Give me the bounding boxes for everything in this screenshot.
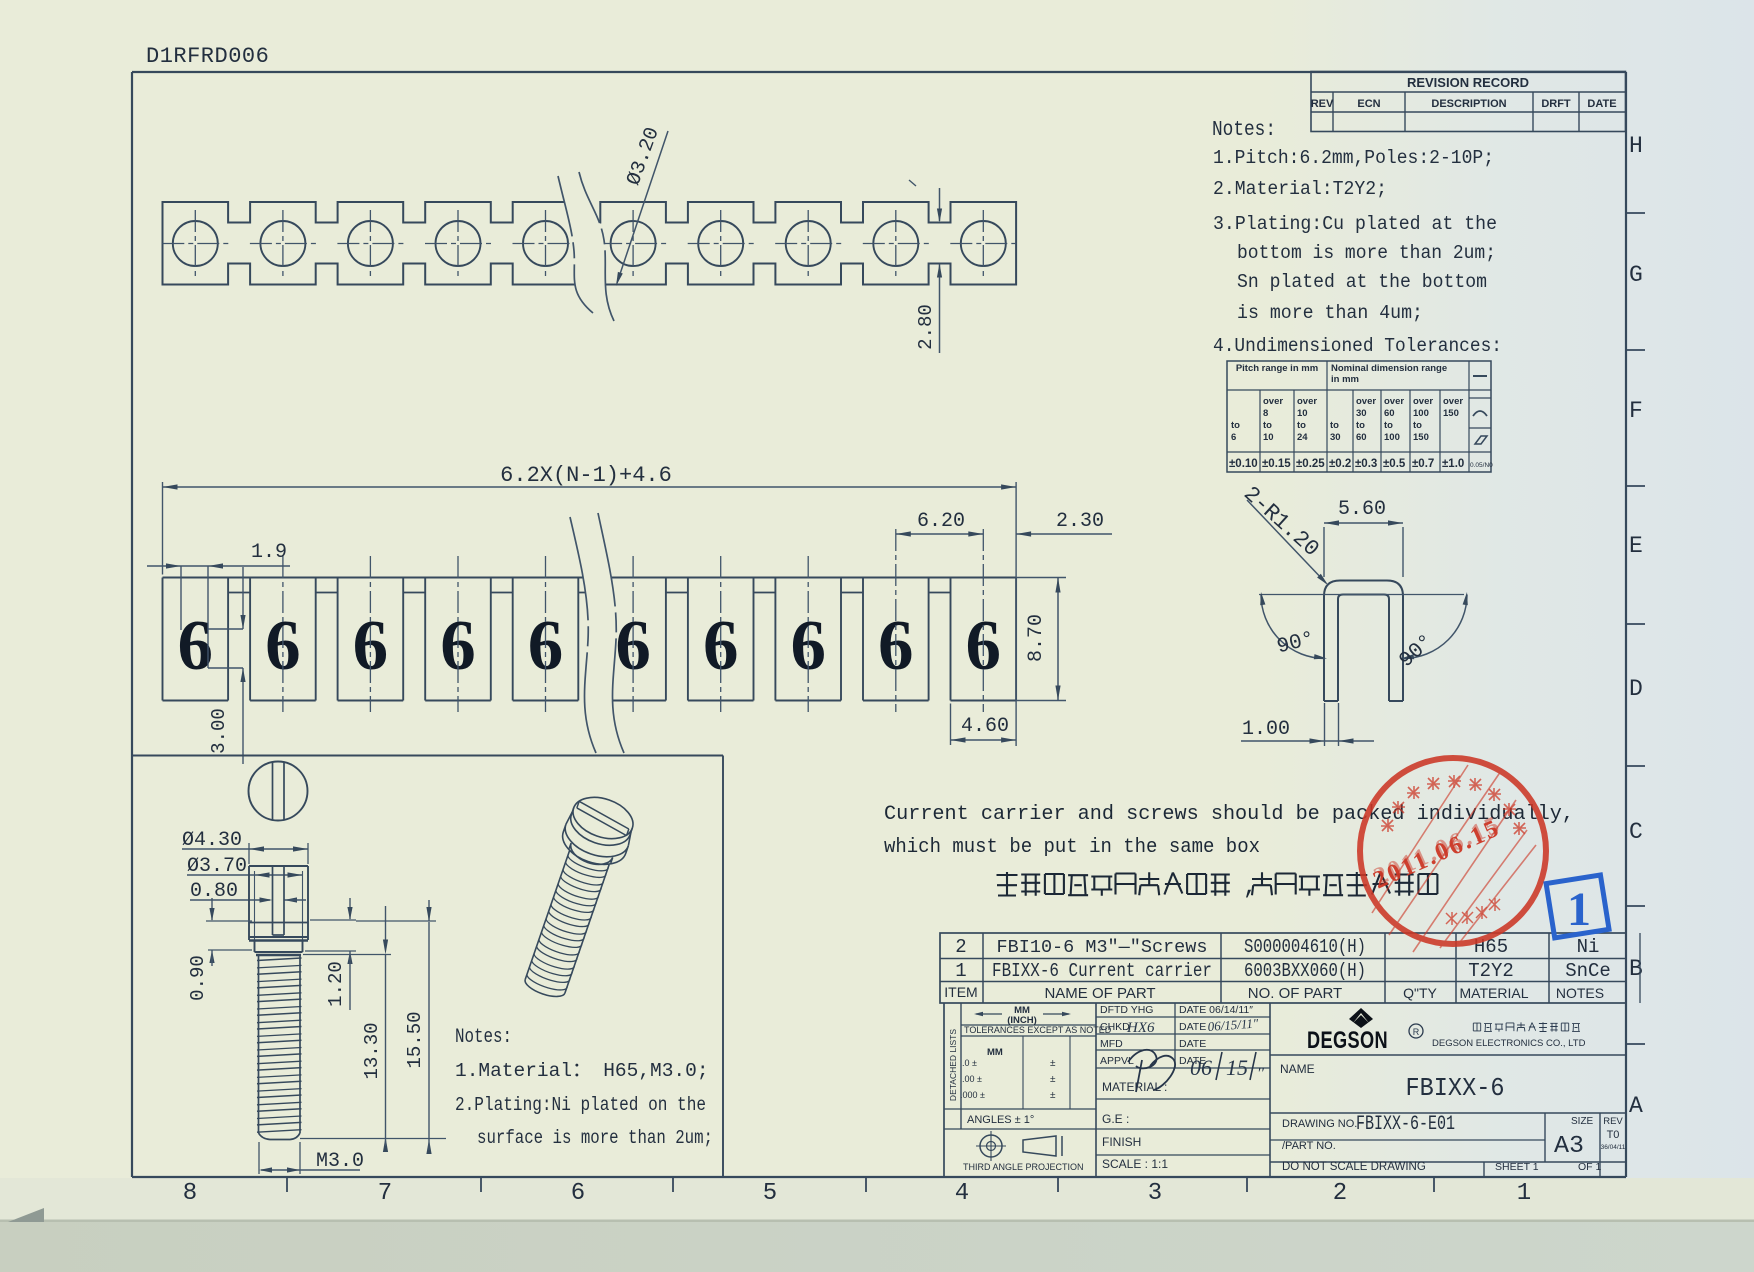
svg-text:0.05/N0: 0.05/N0 xyxy=(1470,462,1493,469)
svg-text:60: 60 xyxy=(1356,432,1367,443)
svg-text:to: to xyxy=(1263,420,1272,431)
svg-text:2.80: 2.80 xyxy=(915,304,937,350)
svg-text:3.Plating:Cu plated at the: 3.Plating:Cu plated at the xyxy=(1213,213,1497,235)
svg-text:±: ± xyxy=(1050,1090,1056,1101)
svg-text:C: C xyxy=(1629,819,1643,845)
svg-text:D: D xyxy=(1629,676,1643,702)
svg-text:QʺTY: QʺTY xyxy=(1403,985,1437,1001)
svg-text:SIZE: SIZE xyxy=(1571,1116,1594,1127)
svg-text:±0.25: ±0.25 xyxy=(1296,458,1325,470)
svg-text:±: ± xyxy=(1050,1074,1056,1085)
svg-text:DATE: DATE xyxy=(1179,1038,1206,1050)
svg-text:over: over xyxy=(1263,396,1283,407)
svg-text:±0.10: ±0.10 xyxy=(1229,458,1258,470)
svg-text:which must be put in the same: which must be put in the same box xyxy=(884,836,1260,859)
svg-text:/PART NO.: /PART NO. xyxy=(1282,1140,1336,1152)
svg-text:over: over xyxy=(1297,396,1317,407)
svg-text:B: B xyxy=(1629,956,1643,982)
svg-text:M3.0: M3.0 xyxy=(316,1150,364,1173)
svg-text:.000 ±: .000 ± xyxy=(960,1090,985,1100)
svg-text:10: 10 xyxy=(1297,408,1308,419)
svg-text:30: 30 xyxy=(1330,432,1341,443)
svg-text:DATE: DATE xyxy=(1179,1021,1206,1033)
svg-text:2.Material:T2Y2;: 2.Material:T2Y2; xyxy=(1213,178,1387,200)
svg-text:.0 ±: .0 ± xyxy=(962,1058,977,1068)
svg-text:±: ± xyxy=(1050,1058,1056,1069)
svg-text:CHKD: CHKD xyxy=(1100,1021,1130,1033)
svg-text:over: over xyxy=(1356,396,1376,407)
svg-text:36/04/11: 36/04/11 xyxy=(1601,1144,1626,1151)
svg-text:±0.7: ±0.7 xyxy=(1412,458,1434,470)
svg-text:SnCe: SnCe xyxy=(1565,960,1611,982)
svg-text:1.Material： H65,M3.0;: 1.Material： H65,M3.0; xyxy=(455,1060,709,1082)
svg-text:150: 150 xyxy=(1443,408,1459,419)
svg-text:DEGSON ELECTRONICS CO., LTD: DEGSON ELECTRONICS CO., LTD xyxy=(1432,1038,1586,1049)
svg-text:to: to xyxy=(1330,420,1339,431)
svg-text:NO. OF PART: NO. OF PART xyxy=(1248,985,1342,1002)
svg-text:ITEM: ITEM xyxy=(944,984,977,1000)
svg-text:1: 1 xyxy=(955,960,966,982)
svg-text:REV: REV xyxy=(1311,98,1334,110)
svg-text:to: to xyxy=(1297,420,1306,431)
svg-text:NOTES: NOTES xyxy=(1556,985,1604,1001)
svg-text:MFD: MFD xyxy=(1100,1038,1123,1050)
svg-text:over: over xyxy=(1443,396,1463,407)
svg-text:OF 1: OF 1 xyxy=(1578,1161,1601,1173)
svg-text:6003BXX060(H): 6003BXX060(H) xyxy=(1244,960,1366,982)
svg-text:to: to xyxy=(1231,420,1240,431)
svg-text:G.E :: G.E : xyxy=(1102,1112,1129,1126)
svg-text:1.00: 1.00 xyxy=(1242,718,1290,741)
svg-text:3: 3 xyxy=(1148,1180,1162,1207)
svg-text:8: 8 xyxy=(1263,408,1268,419)
svg-text:06: 06 xyxy=(1190,1055,1212,1080)
svg-text:DEGSON: DEGSON xyxy=(1307,1027,1388,1054)
svg-text:FBIXX-6: FBIXX-6 xyxy=(1406,1073,1505,1103)
svg-text:.00 ±: .00 ± xyxy=(962,1074,982,1084)
svg-text:1.9: 1.9 xyxy=(251,541,287,564)
svg-text:over: over xyxy=(1384,396,1404,407)
svg-text:SCALE : 1:1: SCALE : 1:1 xyxy=(1102,1157,1168,1171)
svg-text:2.30: 2.30 xyxy=(1056,510,1104,533)
svg-text:3.00: 3.00 xyxy=(208,708,230,754)
svg-text:7: 7 xyxy=(378,1180,392,1207)
svg-text:ECN: ECN xyxy=(1357,98,1380,110)
svg-text:±0.3: ±0.3 xyxy=(1355,458,1377,470)
svg-text:H: H xyxy=(1629,133,1643,159)
svg-text:±1.0: ±1.0 xyxy=(1442,458,1464,470)
svg-text:REV: REV xyxy=(1603,1116,1623,1127)
svg-text:1.20: 1.20 xyxy=(325,961,347,1007)
svg-text:24: 24 xyxy=(1297,432,1308,443)
svg-text:Ni: Ni xyxy=(1577,936,1600,958)
svg-text:NAME: NAME xyxy=(1280,1062,1315,1076)
svg-text:10: 10 xyxy=(1263,432,1274,443)
svg-text:REVISION RECORD: REVISION RECORD xyxy=(1407,75,1529,90)
svg-text:1: 1 xyxy=(1567,883,1591,936)
svg-text:Pitch range in mm: Pitch range in mm xyxy=(1236,363,1318,374)
svg-text:surface is more than 2um;: surface is more than 2um; xyxy=(477,1127,713,1149)
svg-text:DRAWING NO.: DRAWING NO. xyxy=(1282,1118,1357,1130)
svg-text:to: to xyxy=(1356,420,1365,431)
svg-text:over: over xyxy=(1413,396,1433,407)
svg-text:2: 2 xyxy=(1333,1180,1347,1207)
svg-text:MATERIAL: MATERIAL xyxy=(1460,985,1529,1001)
svg-text:DETACHED LISTS: DETACHED LISTS xyxy=(948,1029,958,1101)
svg-text:8: 8 xyxy=(183,1180,197,1207)
svg-text:NAME OF PART: NAME OF PART xyxy=(1044,985,1155,1002)
svg-text:6.2X(N-1)+4.6: 6.2X(N-1)+4.6 xyxy=(500,463,672,488)
svg-text:DATE 06/14/11″: DATE 06/14/11″ xyxy=(1179,1004,1253,1016)
svg-text:ʹʹ: ʹʹ xyxy=(1258,1065,1265,1082)
svg-text:30: 30 xyxy=(1356,408,1367,419)
svg-text:FBIXX-6-E01: FBIXX-6-E01 xyxy=(1356,1113,1455,1136)
svg-text:FINISH: FINISH xyxy=(1102,1135,1141,1149)
svg-text:T0: T0 xyxy=(1607,1129,1620,1141)
svg-text:6: 6 xyxy=(571,1180,585,1207)
svg-text:is more than 4um;: is more than 4um; xyxy=(1237,302,1423,324)
svg-text:1.Pitch:6.2mm,Poles:2-10P;: 1.Pitch:6.2mm,Poles:2-10P; xyxy=(1213,147,1494,169)
svg-text:4: 4 xyxy=(955,1180,969,1207)
svg-text:13.30: 13.30 xyxy=(361,1022,383,1079)
svg-text:150: 150 xyxy=(1413,432,1429,443)
svg-text:15: 15 xyxy=(1226,1055,1248,1080)
svg-text:MATERIAL :: MATERIAL : xyxy=(1102,1080,1167,1094)
svg-text:4.Undimensioned Tolerances:: 4.Undimensioned Tolerances: xyxy=(1213,335,1502,357)
svg-text:8.70: 8.70 xyxy=(1025,614,1048,662)
svg-text:±0.5: ±0.5 xyxy=(1383,458,1406,470)
svg-text:5: 5 xyxy=(763,1180,777,1207)
svg-text:in mm: in mm xyxy=(1331,374,1359,385)
svg-text:Notes:: Notes: xyxy=(455,1026,512,1049)
svg-text:0.90: 0.90 xyxy=(187,955,209,1001)
svg-text:±0.2: ±0.2 xyxy=(1329,458,1351,470)
svg-text:to: to xyxy=(1384,420,1393,431)
svg-text:ANGLES ± 1°: ANGLES ± 1° xyxy=(967,1114,1034,1126)
svg-text:60: 60 xyxy=(1384,408,1395,419)
svg-text:R: R xyxy=(1413,1027,1420,1037)
svg-text:DRFT: DRFT xyxy=(1541,98,1571,110)
svg-text:2: 2 xyxy=(955,936,966,958)
svg-text:A: A xyxy=(1629,1093,1643,1119)
svg-text:15.50: 15.50 xyxy=(404,1011,426,1068)
svg-text:2.Plating:Ni plated on the: 2.Plating:Ni plated on the xyxy=(455,1094,706,1116)
svg-text:1: 1 xyxy=(1517,1180,1531,1207)
svg-text:FBI10-6 M3″—″Screws: FBI10-6 M3″—″Screws xyxy=(997,937,1208,958)
svg-text:DO NOT SCALE DRAWING: DO NOT SCALE DRAWING xyxy=(1282,1161,1426,1173)
svg-text:FBIXX-6 Current carrier: FBIXX-6 Current carrier xyxy=(992,960,1212,982)
svg-text:6.20: 6.20 xyxy=(917,510,965,533)
svg-text:SHEET 1: SHEET 1 xyxy=(1495,1161,1539,1173)
svg-text:bottom is more than 2um;: bottom is more than 2um; xyxy=(1237,242,1496,264)
svg-text:G: G xyxy=(1629,262,1643,288)
svg-text:THIRD ANGLE PROJECTION: THIRD ANGLE PROJECTION xyxy=(963,1162,1084,1172)
svg-text:TOLERANCES EXCEPT AS NOTED: TOLERANCES EXCEPT AS NOTED xyxy=(964,1025,1112,1035)
svg-text:Nominal dimension range: Nominal dimension range xyxy=(1331,363,1447,374)
svg-text:E: E xyxy=(1629,533,1643,559)
svg-text:T2Y2: T2Y2 xyxy=(1468,960,1514,982)
svg-text:DATE: DATE xyxy=(1587,98,1616,110)
svg-text:A3: A3 xyxy=(1554,1133,1584,1160)
svg-text:DFTD YHG: DFTD YHG xyxy=(1100,1004,1153,1016)
svg-text:S000004610(H): S000004610(H) xyxy=(1244,936,1366,958)
svg-text:100: 100 xyxy=(1384,432,1400,443)
svg-text:HX6: HX6 xyxy=(1126,1020,1155,1036)
svg-text:100: 100 xyxy=(1413,408,1429,419)
svg-text:Sn plated at the bottom: Sn plated at the bottom xyxy=(1237,271,1487,293)
svg-text:6: 6 xyxy=(1231,432,1236,443)
svg-text:D1RFRD006: D1RFRD006 xyxy=(146,44,269,69)
svg-text:±0.15: ±0.15 xyxy=(1262,458,1291,470)
svg-text:to: to xyxy=(1413,420,1422,431)
svg-text:Notes:: Notes: xyxy=(1212,119,1276,142)
svg-text:5.60: 5.60 xyxy=(1338,498,1386,521)
svg-text:DESCRIPTION: DESCRIPTION xyxy=(1431,98,1506,110)
svg-text:4.60: 4.60 xyxy=(961,715,1009,738)
svg-text:MM: MM xyxy=(987,1047,1003,1058)
svg-text:F: F xyxy=(1629,398,1643,424)
